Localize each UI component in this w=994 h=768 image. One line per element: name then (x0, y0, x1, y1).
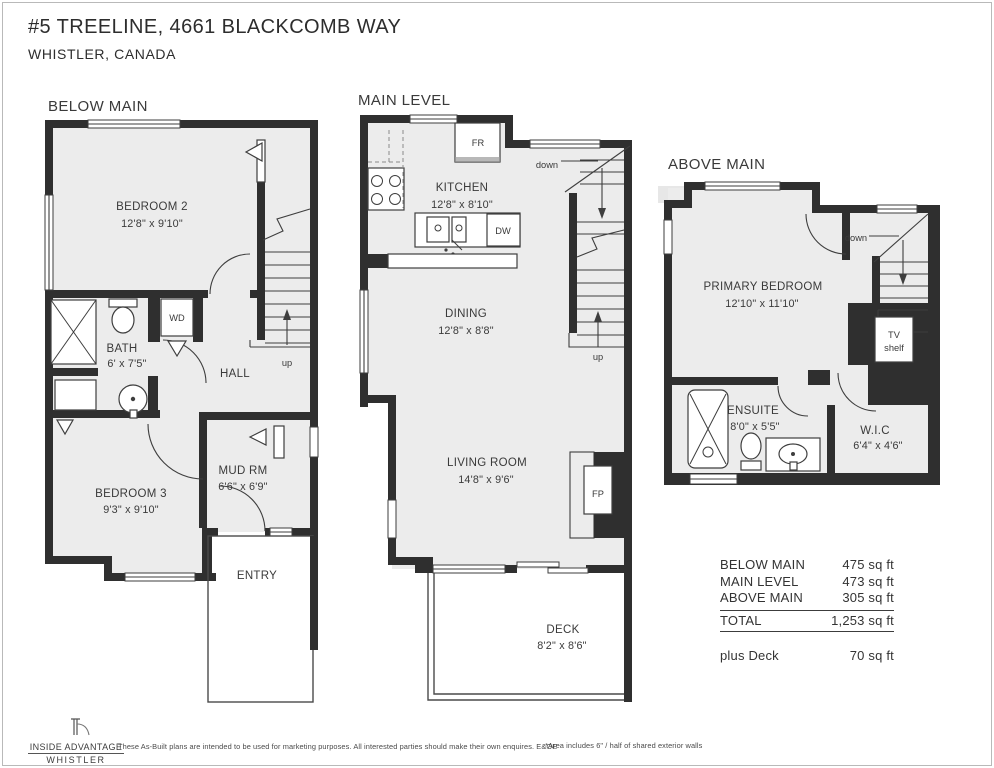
toilet-tank (109, 299, 137, 307)
area-row-main-level: MAIN LEVEL 473 sq ft (720, 574, 894, 591)
above-main-label: ABOVE MAIN (668, 156, 765, 173)
deck-label: DECK (546, 624, 579, 636)
bath-label: BATH (106, 343, 137, 355)
area-row-value: 305 sq ft (842, 590, 894, 607)
deck-outline (428, 573, 624, 700)
area-row-label: ABOVE MAIN (720, 590, 803, 607)
main-level-plan: MAIN LEVEL (358, 92, 632, 702)
main-stairs-up-label: up (593, 352, 603, 362)
kitchen-label: KITCHEN (436, 182, 489, 194)
toilet-bowl (112, 307, 134, 333)
living-room-dims: 14'8" x 9'6" (458, 474, 514, 486)
area-row-total: TOTAL 1,253 sq ft (720, 610, 894, 633)
area-row-label: BELOW MAIN (720, 557, 805, 574)
sink-basin-2 (452, 217, 466, 242)
living-room-label: LIVING ROOM (447, 457, 527, 469)
mudroom-dims: 6'6" x 6'9" (218, 481, 267, 493)
washer-dryer-label: WD (169, 313, 185, 323)
disclaimer-text: These As-Built plans are intended to be … (118, 742, 557, 751)
logo-city: WHISTLER (28, 754, 124, 765)
below-main-plan: BELOW MAIN (45, 98, 318, 702)
area-note: *Area includes 6" / half of shared exter… (545, 741, 702, 750)
wic-dims: 6'4" x 4'6" (853, 440, 902, 452)
below-main-stairs-label: up (282, 358, 292, 368)
area-row-below-main: BELOW MAIN 475 sq ft (720, 557, 894, 574)
entry-outline (208, 536, 313, 702)
dining-label: DINING (445, 308, 487, 320)
mudroom-label: MUD RM (218, 465, 267, 477)
main-stairs-down-label: down (536, 160, 558, 170)
fridge-label: FR (472, 138, 485, 148)
entry-label: ENTRY (237, 570, 277, 582)
tv-shelf-line1: TV (888, 330, 901, 340)
area-row-value: 473 sq ft (842, 574, 894, 591)
linen-closet (55, 380, 96, 410)
deck-dims: 8'2" x 8'6" (537, 640, 586, 652)
ensuite-toilet (741, 433, 761, 459)
hall-label: HALL (220, 368, 250, 380)
bedroom3-label: BEDROOM 3 (95, 488, 167, 500)
company-logo: INSIDE ADVANTAGE WHISTLER (28, 717, 124, 765)
area-table: BELOW MAIN 475 sq ft MAIN LEVEL 473 sq f… (720, 557, 894, 665)
below-main-label: BELOW MAIN (48, 98, 148, 115)
tv-shelf-line2: shelf (884, 343, 904, 353)
logo-glyph-icon (61, 717, 91, 737)
fireplace-label: FP (592, 489, 604, 499)
bedroom2-dims: 12'8" x 9'10" (121, 218, 183, 230)
bath-dims: 6' x 7'5" (107, 358, 146, 370)
ensuite-dims: 8'0" x 5'5" (730, 421, 779, 433)
dining-dims: 12'8" x 8'8" (438, 325, 494, 337)
deck-row-label: plus Deck (720, 648, 779, 665)
total-value: 1,253 sq ft (831, 613, 894, 630)
kitchen-dims: 12'8" x 8'10" (431, 199, 493, 211)
wic-label: W.I.C (860, 425, 890, 437)
primary-bedroom-label: PRIMARY BEDROOM (703, 281, 822, 293)
above-stairs-down-label: down (845, 233, 867, 243)
area-row-value: 475 sq ft (842, 557, 894, 574)
main-level-label: MAIN LEVEL (358, 92, 450, 109)
area-row-label: MAIN LEVEL (720, 574, 799, 591)
tv-shelf: TV shelf (875, 317, 913, 362)
total-label: TOTAL (720, 613, 762, 630)
ensuite-label: ENSUITE (727, 405, 779, 417)
bedroom3-dims: 9'3" x 9'10" (103, 504, 159, 516)
deck-row-value: 70 sq ft (850, 648, 894, 665)
logo-company-name: INSIDE ADVANTAGE (28, 742, 124, 754)
kitchen-bar-counter (388, 254, 517, 268)
dishwasher-label: DW (495, 226, 511, 236)
above-main-plan: ABOVE MAIN (658, 156, 940, 485)
bedroom2-label: BEDROOM 2 (116, 201, 188, 213)
primary-bedroom-dims: 12'10" x 11'10" (725, 298, 798, 310)
area-row-deck: plus Deck 70 sq ft (720, 648, 894, 665)
sink-basin (427, 217, 449, 242)
area-row-above-main: ABOVE MAIN 305 sq ft (720, 590, 894, 607)
